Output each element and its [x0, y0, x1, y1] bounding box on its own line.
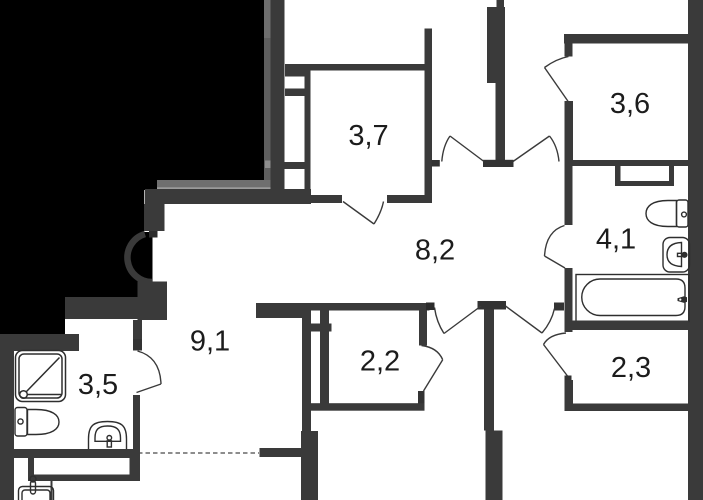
svg-text:3,5: 3,5 — [78, 369, 118, 401]
svg-text:3,7: 3,7 — [348, 120, 388, 152]
svg-text:3,6: 3,6 — [610, 88, 650, 120]
svg-text:8,2: 8,2 — [415, 235, 455, 267]
svg-text:2,3: 2,3 — [611, 352, 651, 384]
svg-text:9,1: 9,1 — [190, 326, 230, 358]
svg-text:2,2: 2,2 — [360, 346, 400, 378]
svg-text:4,1: 4,1 — [596, 224, 636, 256]
